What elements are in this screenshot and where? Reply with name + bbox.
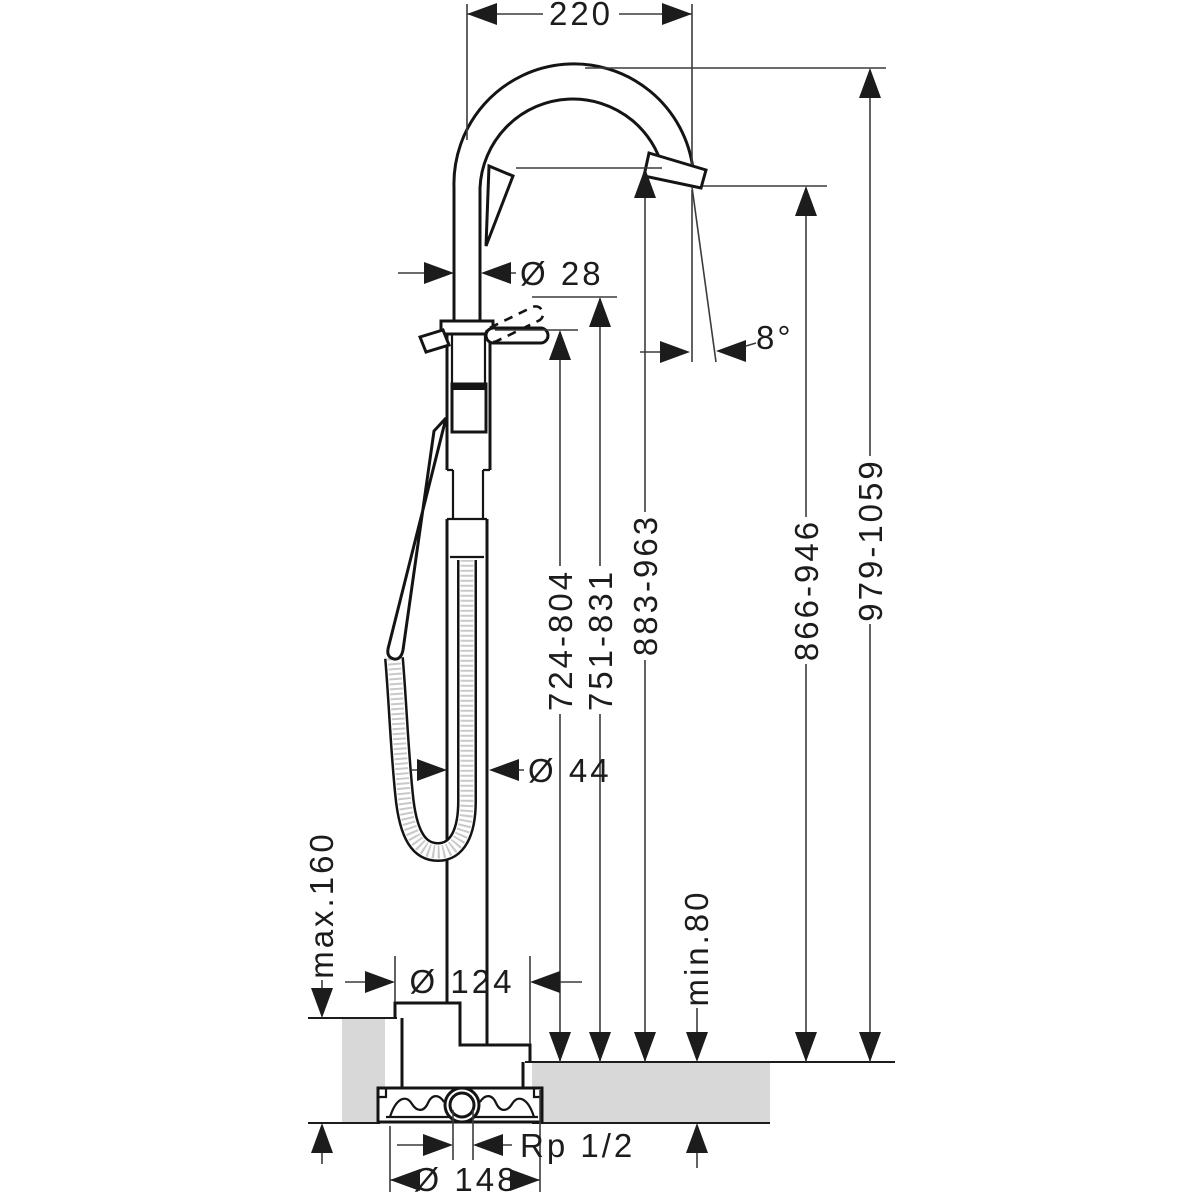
spout-outlet [644, 153, 706, 188]
label-overall-height: 979-1059 [852, 458, 889, 621]
label-basic-set-diameter: Ø 148 [414, 1161, 519, 1198]
dim-8deg-lines [640, 187, 756, 362]
basic-set [378, 1088, 542, 1122]
arrow-979-top [859, 68, 881, 98]
arrow-751-top [589, 297, 611, 327]
body-inner-walls [452, 334, 485, 384]
label-spout-pipe-diameter: Ø 28 [520, 255, 604, 292]
label-outlet-height: 866-946 [788, 519, 825, 661]
escutcheon-body [402, 1018, 523, 1088]
label-spout-reach: 220 [549, 0, 613, 32]
arrow-max160-bottom [311, 1123, 333, 1153]
label-min-floor-thickness: min.80 [678, 889, 715, 1006]
label-lever-raised-height: 751-831 [582, 569, 619, 711]
arrow-751-bottom [589, 1032, 611, 1062]
arrow-220-left [467, 3, 497, 25]
arrow-max160-top [311, 988, 333, 1018]
floor-slab-right [532, 1062, 770, 1123]
escutcheon-cap [395, 1003, 530, 1062]
escutcheon-base [395, 1003, 530, 1088]
cartridge-top-band [452, 384, 486, 390]
arrow-d124-left [365, 971, 395, 993]
spout-aerator-wedge [486, 166, 513, 246]
arrow-rp12-left [423, 1134, 453, 1156]
arrow-8deg-left [660, 341, 690, 363]
label-pillar-diameter: Ø 44 [528, 752, 612, 789]
cartridge-box [452, 384, 486, 432]
bath-mixer-dimension-drawing: 220 Ø 28 8° Ø 44 724-804 751-831 883-963… [0, 0, 1200, 1200]
arrow-866-bottom [795, 1032, 817, 1062]
arrow-866-top [795, 186, 817, 216]
arrow-724-top [549, 330, 571, 360]
arrow-220-right [662, 3, 692, 25]
arrow-d28-right [481, 262, 511, 284]
arrow-min80-bottom [686, 1123, 708, 1153]
hand-shower [388, 418, 446, 659]
label-escutcheon-diameter: Ø 124 [410, 963, 515, 1000]
arrow-724-bottom [549, 1032, 571, 1062]
body-steps [447, 470, 490, 557]
arrow-d28-left [424, 262, 454, 284]
label-max-floor-buildup: max.160 [303, 831, 340, 979]
arrow-979-bottom [859, 1032, 881, 1062]
label-lever-height: 724-804 [542, 569, 579, 711]
arrow-d124-right [530, 971, 560, 993]
arrow-d44-left [417, 759, 447, 781]
label-spout-underside-height: 883-963 [627, 514, 664, 656]
arrow-883-bottom [634, 1032, 656, 1062]
spout-arch-inner [480, 99, 665, 334]
label-connection-thread: Rp 1/2 [520, 1127, 635, 1164]
label-spout-angle: 8° [756, 319, 794, 356]
arrow-d44-right [489, 759, 519, 781]
technical-drawing-canvas: 220 Ø 28 8° Ø 44 724-804 751-831 883-963… [0, 0, 1200, 1200]
arrow-8deg-right [716, 340, 746, 362]
arrow-rp12-right [473, 1134, 503, 1156]
arrow-min80-top [686, 1032, 708, 1062]
side-tab [420, 330, 449, 352]
